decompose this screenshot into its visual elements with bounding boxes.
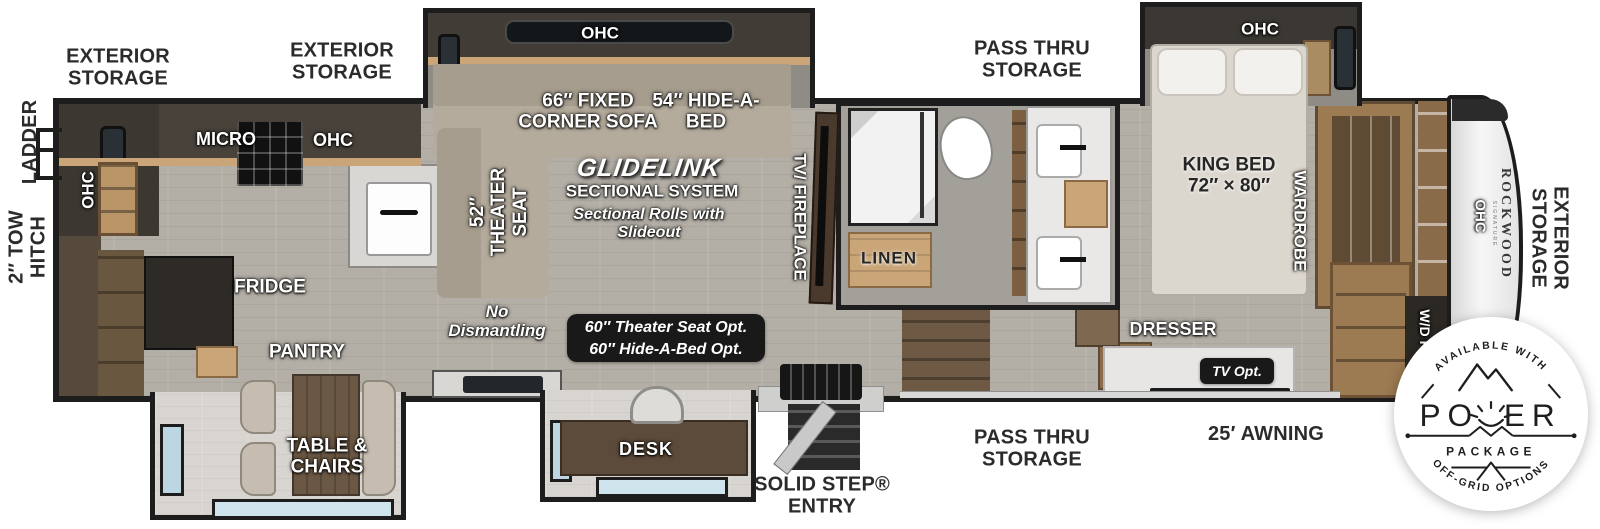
label-line: 72″ × 80″: [1183, 176, 1276, 197]
shower-glass: [920, 112, 924, 218]
label-tv-fireplace: TV/ FIREPLACE: [790, 153, 809, 281]
label-dresser: DRESSER: [1129, 319, 1216, 339]
label-desk: DESK: [619, 439, 673, 459]
label-line: 2″ TOW: [6, 210, 28, 284]
label-line: SEAT: [510, 168, 531, 256]
fridge-cabinet-column: [98, 250, 144, 396]
label-micro: MICRO: [196, 129, 256, 149]
label-ohc-front: OHC: [1471, 199, 1488, 232]
vanity-sink-1: [1036, 124, 1082, 178]
vanity-cabinet-strip: [1012, 110, 1026, 296]
vanity-mid-cabinet: [1064, 180, 1108, 228]
fridge: [144, 256, 234, 350]
label-sectional-system: SECTIONAL SYSTEM: [566, 181, 739, 200]
label-line: ENTRY: [754, 496, 890, 518]
badge-power-right: ER: [1504, 397, 1562, 433]
label-line: STORAGE: [1527, 186, 1549, 290]
front-cap-top-trim: [1452, 99, 1508, 121]
label-tow-hitch: 2″ TOW HITCH: [6, 210, 51, 284]
king-pillow-2: [1233, 48, 1303, 96]
label-line: PASS THRU: [974, 38, 1090, 60]
label-exterior-storage-mid: EXTERIOR STORAGE: [290, 40, 394, 85]
label-ohc-kitchen-top: OHC: [313, 130, 353, 150]
label-table-chairs: TABLE & CHAIRS: [287, 436, 368, 479]
label-line: TABLE &: [287, 436, 368, 457]
label-king-bed: KING BED 72″ × 80″: [1183, 155, 1276, 198]
label-exterior-storage-front: EXTERIOR STORAGE: [1527, 186, 1572, 290]
side-cabinet: [98, 162, 138, 236]
label-pass-thru-top: PASS THRU STORAGE: [974, 38, 1090, 83]
dinette-bench-left-2: [240, 442, 276, 496]
stair-landing: [1075, 305, 1120, 347]
awning-rail: [900, 391, 1340, 398]
label-hide-a-bed: 54″ HIDE-A- BED: [652, 91, 759, 134]
glidelink-logo: GLIDELINK: [575, 154, 723, 182]
label-line: CORNER SOFA: [518, 112, 657, 133]
bedroom-stairs: [902, 302, 990, 396]
label-fridge: FRIDGE: [234, 276, 306, 297]
label-line: THEATER: [488, 168, 509, 256]
label-line: STORAGE: [974, 60, 1090, 82]
label-line: STORAGE: [66, 68, 170, 90]
label-line: EXTERIOR: [1549, 186, 1571, 290]
label-line: BED: [652, 112, 759, 133]
pantry-cabinet: [196, 346, 238, 378]
badge-package: PACKAGE: [1446, 445, 1536, 459]
king-pillow-1: [1157, 48, 1227, 96]
label-line: Slideout: [573, 224, 724, 242]
grill: [780, 364, 862, 400]
label-line: 66″ FIXED: [518, 91, 657, 112]
label-ohc-kitchen-left: OHC: [78, 171, 97, 209]
floorplan-diagram: EXTERIOR STORAGE EXTERIOR STORAGE PASS T…: [0, 0, 1600, 529]
rockwood-logo: ROCKWOOD SIGNATURE: [1491, 168, 1513, 280]
label-solid-step-entry: SOLID STEP® ENTRY: [754, 474, 890, 519]
label-line: EXTERIOR: [66, 46, 170, 68]
label-line: Dismantling: [448, 321, 545, 340]
king-slide-window: [1334, 26, 1356, 90]
label-ohc-king: OHC: [1241, 19, 1279, 38]
brand-name: ROCKWOOD: [1497, 168, 1513, 280]
label-sectional-note: Sectional Rolls with Slideout: [573, 206, 724, 242]
shower: [848, 108, 938, 226]
sectional-options-box: 60″ Theater Seat Opt. 60″ Hide-A-Bed Opt…: [567, 314, 765, 362]
desk-window-bottom: [596, 477, 728, 497]
label-line: STORAGE: [290, 62, 394, 84]
label-ohc-sofa: OHC: [581, 23, 619, 42]
label-awning: 25′ AWNING: [1208, 423, 1324, 445]
option-line: 60″ Theater Seat Opt.: [567, 317, 765, 339]
label-line: 54″ HIDE-A-: [652, 91, 759, 112]
vanity-faucet-1: [1060, 145, 1086, 150]
label-line: STORAGE: [974, 449, 1090, 471]
label-corner-sofa: 66″ FIXED CORNER SOFA: [518, 91, 657, 134]
label-linen: LINEN: [861, 248, 917, 267]
dinette-bench-left-1: [240, 380, 276, 434]
left-wall-cabinets: [59, 236, 101, 396]
tv-opt-box: TV Opt.: [1200, 358, 1274, 384]
dinette-window-bottom: [212, 499, 394, 519]
label-line: KING BED: [1183, 155, 1276, 176]
label-wardrobe: WARDROBE: [1290, 170, 1309, 271]
label-pantry: PANTRY: [269, 341, 345, 362]
label-line: EXTERIOR: [290, 40, 394, 62]
label-ladder: LADDER: [19, 100, 41, 185]
label-line: 52″: [467, 168, 488, 256]
label-pass-thru-bottom: PASS THRU STORAGE: [974, 427, 1090, 472]
label-line: PASS THRU: [974, 427, 1090, 449]
label-theater-seat: 52″ THEATER SEAT: [467, 168, 531, 256]
option-line: 60″ Hide-A-Bed Opt.: [567, 339, 765, 361]
label-line: CHAIRS: [287, 457, 368, 478]
island-sink: [463, 376, 543, 393]
power-package-badge: AVAILABLE WITH PO ER PACKAGE OFF-GRI: [1392, 315, 1590, 513]
kitchen-faucet: [380, 210, 418, 215]
label-line: No: [448, 302, 545, 321]
label-line: SOLID STEP®: [754, 474, 890, 496]
kitchen-sink: [366, 182, 432, 256]
label-line: HITCH: [28, 210, 50, 284]
label-no-dismantling: No Dismantling: [448, 302, 545, 340]
vanity-faucet-2: [1060, 257, 1086, 262]
label-line: Sectional Rolls with: [573, 206, 724, 224]
label-exterior-storage-rear: EXTERIOR STORAGE: [66, 46, 170, 91]
vanity-sink-2: [1036, 236, 1082, 290]
sofa-ohc-glass: [505, 20, 734, 44]
dinette-window-left: [160, 424, 184, 496]
